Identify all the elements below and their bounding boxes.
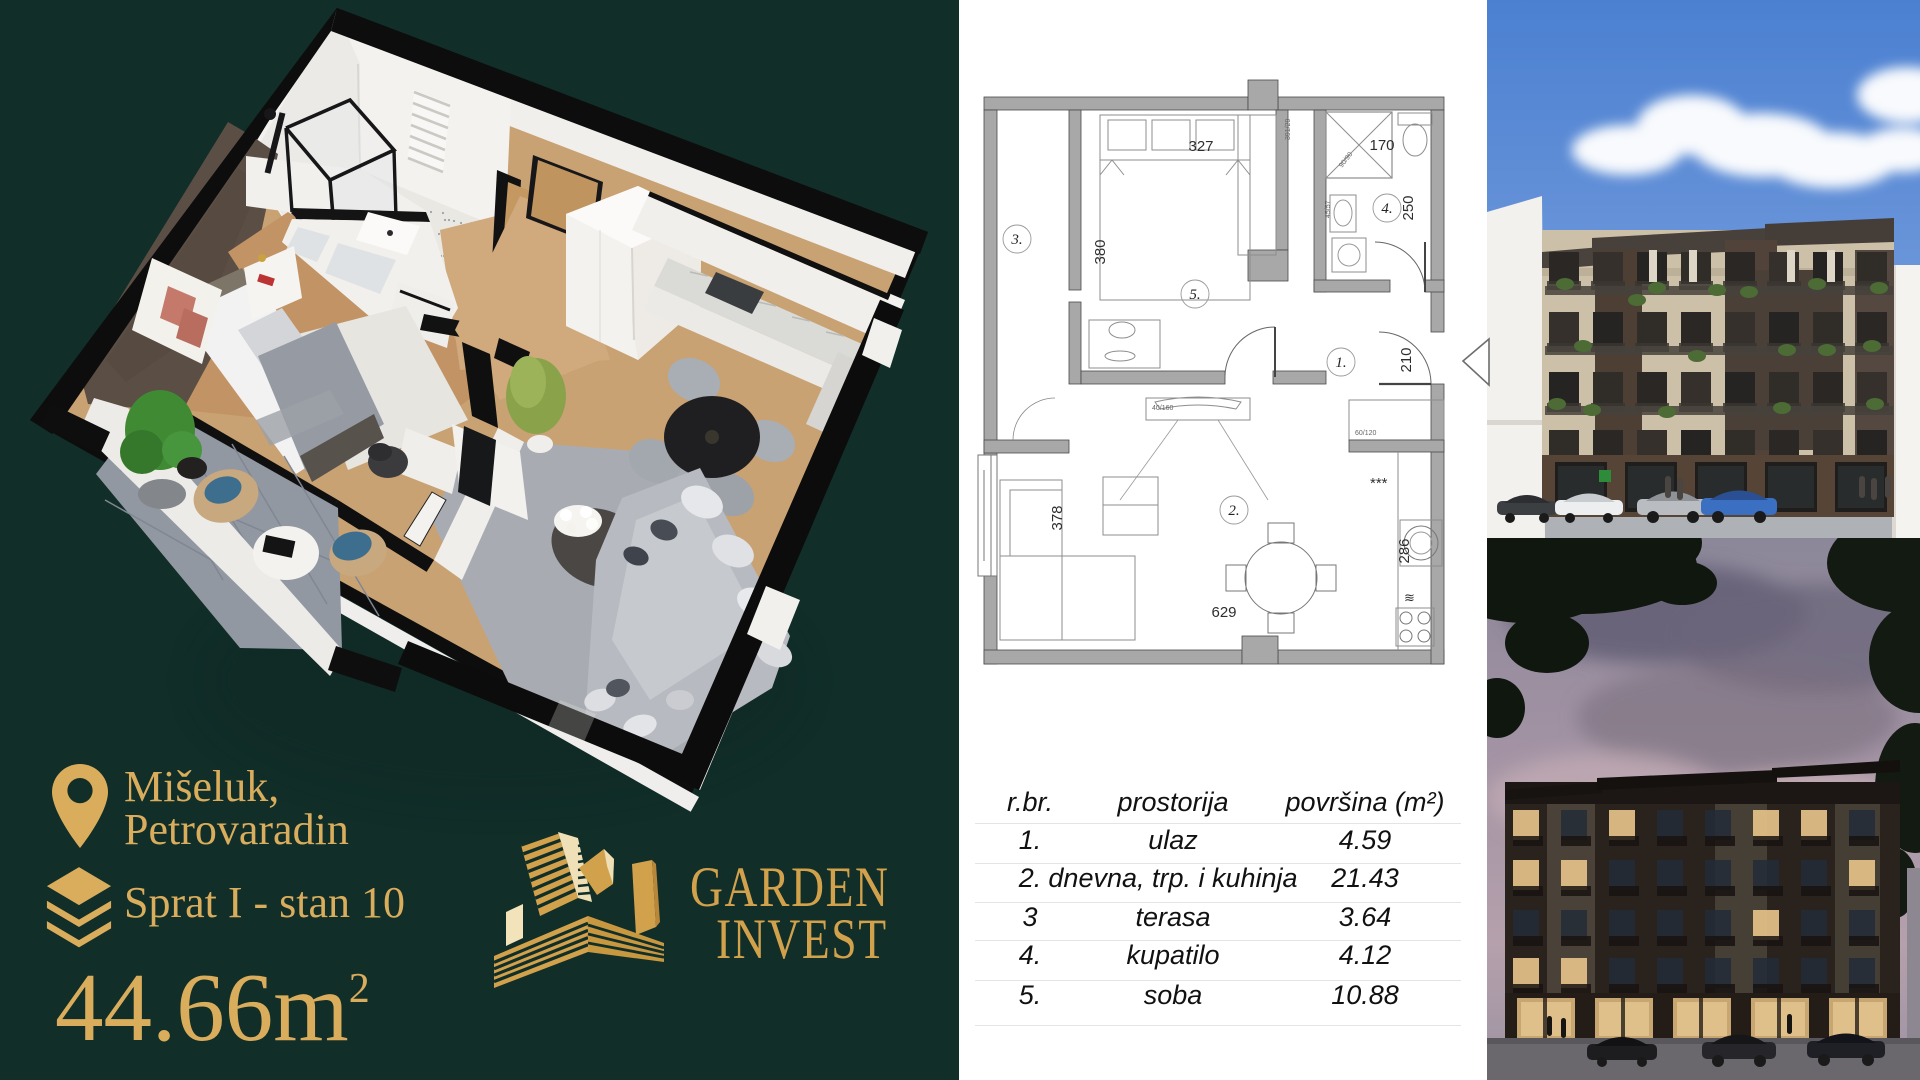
svg-text:250: 250 xyxy=(1400,195,1417,220)
svg-text:40/160: 40/160 xyxy=(1152,405,1174,412)
svg-text:380: 380 xyxy=(1092,239,1109,264)
svg-text:60/120: 60/120 xyxy=(1355,430,1377,437)
svg-text:90/90: 90/90 xyxy=(1338,151,1354,169)
svg-text:170: 170 xyxy=(1369,137,1394,154)
svg-text:3.: 3. xyxy=(1010,232,1022,248)
svg-text:***: *** xyxy=(1370,475,1388,492)
svg-text:≋: ≋ xyxy=(1404,590,1415,605)
svg-text:4.: 4. xyxy=(1381,201,1392,217)
svg-text:286: 286 xyxy=(1396,538,1413,563)
svg-text:1.: 1. xyxy=(1335,355,1346,371)
svg-text:391/29: 391/29 xyxy=(1285,118,1292,140)
svg-text:210: 210 xyxy=(1398,347,1415,372)
svg-text:327: 327 xyxy=(1188,138,1213,155)
svg-text:378: 378 xyxy=(1049,505,1066,530)
svg-text:2.: 2. xyxy=(1228,503,1239,519)
svg-text:629: 629 xyxy=(1211,604,1236,621)
svg-text:5.: 5. xyxy=(1189,287,1200,303)
svg-text:45/57: 45/57 xyxy=(1325,200,1332,218)
